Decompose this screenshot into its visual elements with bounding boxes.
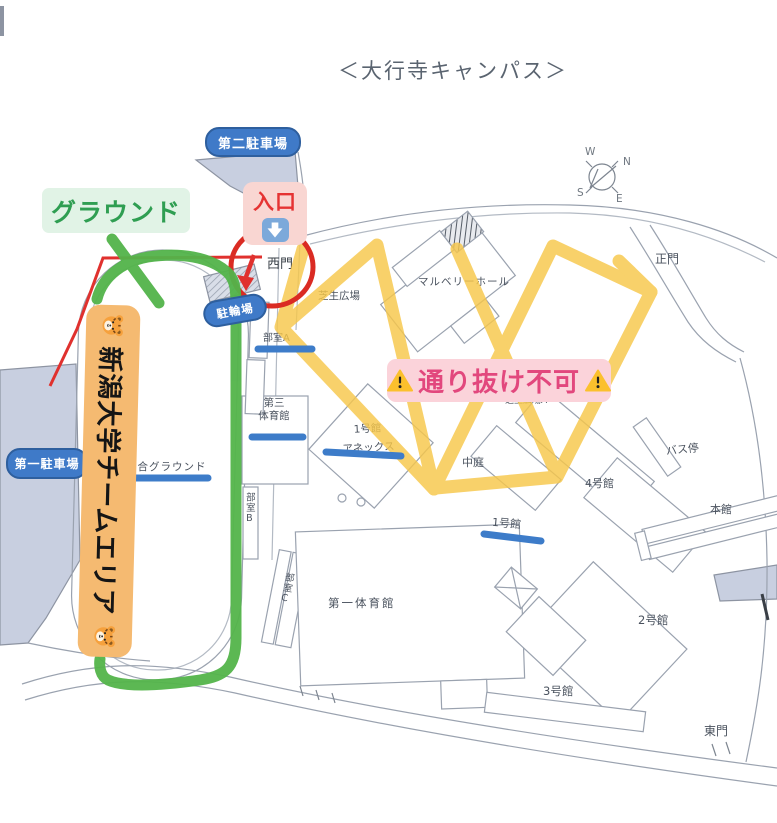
bicycle-parking-pill: 駐輪場 (201, 292, 269, 330)
tiger-icon (101, 314, 125, 338)
parking2-pill: 第二駐車場 (205, 127, 301, 157)
entrance-text: 入口 (253, 186, 297, 216)
down-arrow-icon (264, 220, 286, 240)
no-pass-text: 通り抜け不可 (418, 362, 580, 399)
down-arrow-button (262, 218, 289, 242)
team-area-banner: 新潟大学チームエリア (77, 304, 140, 657)
parking1-pill: 第一駐車場 (6, 448, 88, 479)
campus-map: 西門 正門 東門 マルベリーホール 芝生広場 芝生広場A 中庭 第三 体育館 1… (0, 0, 777, 823)
annotation-layer: ＜大行寺キャンパス＞ 第二駐車場 駐輪場 第一駐車場 グラウンド 入口 通り抜け… (0, 0, 777, 823)
no-pass-banner: 通り抜け不可 (387, 359, 611, 402)
page-title: ＜大行寺キャンパス＞ (338, 55, 568, 85)
entrance-label: 入口 (243, 182, 307, 245)
warning-icon (585, 369, 611, 392)
ground-label: グラウンド (42, 188, 190, 233)
warning-icon (387, 369, 413, 392)
team-area-text: 新潟大学チームエリア (87, 346, 131, 616)
tiger-icon (93, 625, 117, 649)
